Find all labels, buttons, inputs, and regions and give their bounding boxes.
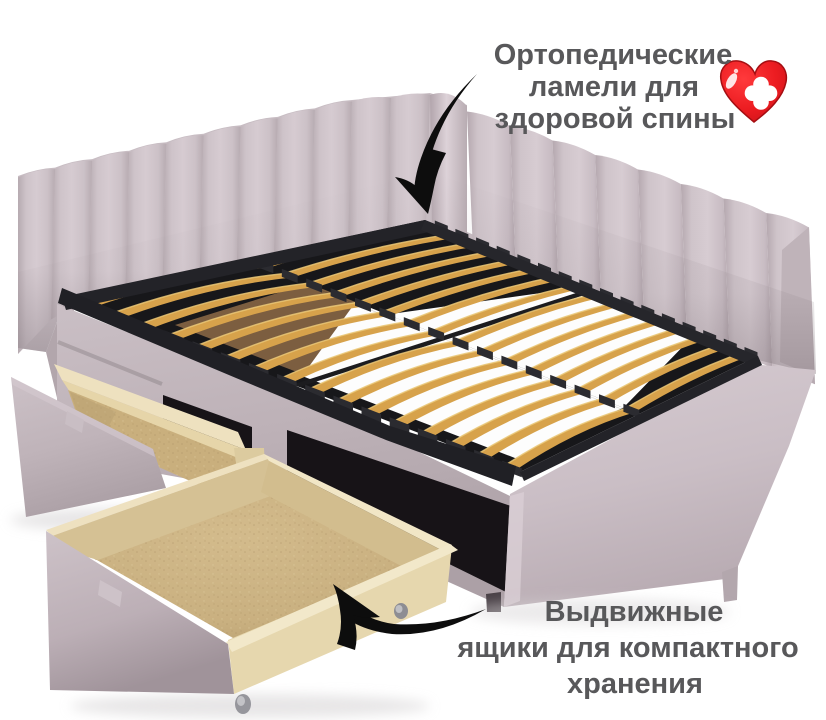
svg-text:Выдвижные: Выдвижные <box>545 596 724 628</box>
svg-text:хранения: хранения <box>567 668 703 700</box>
svg-text:Ортопедические: Ортопедические <box>494 39 733 71</box>
svg-text:здоровой спины: здоровой спины <box>495 103 736 135</box>
svg-text:ящики для компактного: ящики для компактного <box>456 632 798 664</box>
svg-text:ламели для: ламели для <box>529 71 699 103</box>
